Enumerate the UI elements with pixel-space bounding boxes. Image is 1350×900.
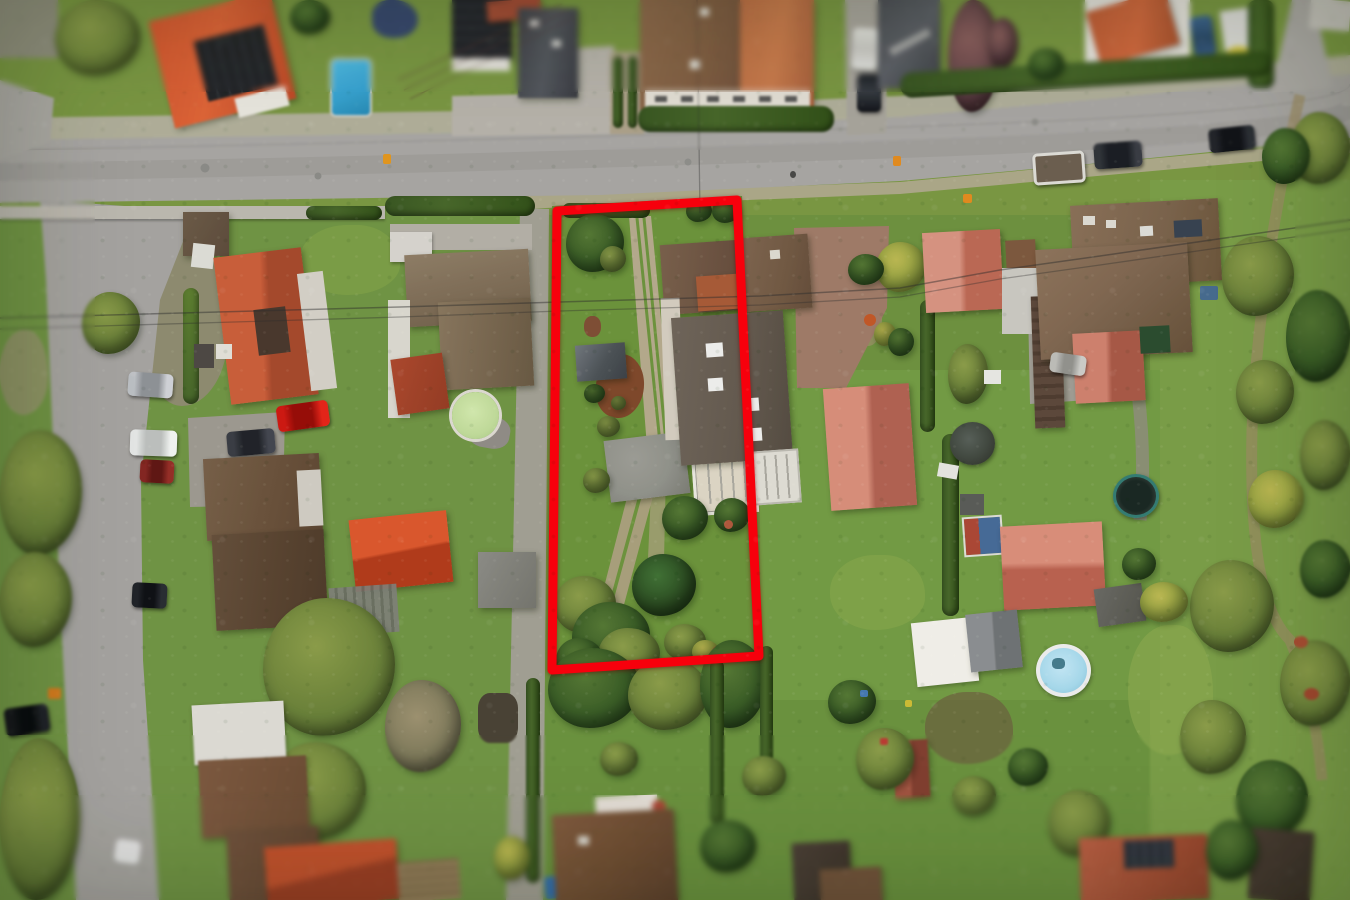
hedge	[638, 106, 834, 132]
hedge-ball	[712, 199, 740, 223]
bush	[888, 328, 914, 356]
house-wall	[452, 58, 510, 71]
playhouse	[962, 515, 1005, 558]
skylight	[530, 20, 539, 27]
garden-toy	[860, 690, 868, 697]
aerial-photo	[0, 0, 1350, 900]
solar-panel-roof	[1124, 839, 1175, 869]
path-grass-stripe	[637, 218, 660, 443]
shed-roof	[965, 609, 1023, 672]
bathtub	[114, 838, 142, 864]
tarp	[372, 0, 418, 38]
bush	[597, 416, 620, 437]
garden-shed	[575, 342, 627, 381]
garage-roof	[604, 431, 691, 502]
car	[139, 459, 174, 484]
car	[226, 428, 276, 457]
flower-bed	[584, 316, 601, 337]
bush	[583, 468, 610, 493]
conservatory-glazing	[755, 454, 798, 501]
trailer	[1032, 150, 1086, 186]
pool-ladder	[1052, 658, 1065, 669]
awning	[1139, 325, 1170, 354]
car	[1208, 125, 1256, 154]
solar-panel-roof	[1174, 219, 1203, 237]
caravan	[191, 243, 215, 269]
hedge	[760, 646, 773, 770]
house-roof	[738, 234, 813, 313]
shed-roof	[1094, 583, 1147, 627]
house-roof	[552, 809, 679, 900]
window-row	[655, 96, 800, 102]
house-roof	[1248, 828, 1315, 900]
chimney	[770, 250, 781, 260]
flower-bush	[724, 520, 733, 529]
hedge	[942, 434, 959, 616]
house-roof	[819, 866, 883, 900]
flower-bush	[1294, 636, 1308, 648]
white-box	[216, 344, 232, 359]
house-wall	[297, 469, 324, 526]
garden-toy	[880, 738, 888, 745]
camper-van	[851, 27, 879, 70]
car	[131, 582, 167, 609]
house-roof	[518, 8, 578, 98]
trampoline	[1113, 474, 1159, 518]
garden-pool	[452, 392, 499, 439]
swimming-pool	[332, 60, 370, 115]
house-roof	[264, 838, 400, 900]
shed-roof	[390, 353, 449, 416]
garden-bed	[0, 330, 48, 415]
traffic-marker	[383, 154, 391, 164]
skylight	[747, 427, 763, 441]
flower-bush	[864, 314, 876, 326]
bush	[632, 554, 696, 616]
garden-bench	[1200, 286, 1218, 300]
round-pool	[1036, 644, 1091, 697]
skylight	[552, 40, 561, 47]
garden-bed	[478, 693, 518, 743]
house-roof	[823, 383, 917, 511]
bush	[600, 246, 626, 272]
garden-bed	[0, 0, 58, 58]
chimney	[690, 60, 700, 69]
hedge	[628, 56, 637, 128]
car	[1093, 140, 1143, 169]
house-roof	[191, 701, 286, 766]
flower-bush	[1304, 688, 1319, 700]
skylight	[706, 342, 724, 357]
pallets	[397, 858, 462, 900]
traffic-marker	[893, 156, 901, 166]
shed-roof	[194, 344, 214, 368]
chimney	[578, 836, 589, 845]
hedge	[306, 206, 382, 220]
garden-bed	[925, 692, 1013, 764]
house-roof	[349, 510, 454, 592]
house-roof	[671, 310, 793, 465]
lawn	[990, 90, 1170, 160]
hedge-ball	[686, 200, 712, 222]
hedge	[385, 196, 535, 216]
house-roof	[696, 274, 742, 312]
hedge	[920, 300, 935, 432]
traffic-marker	[963, 194, 972, 203]
car	[130, 429, 178, 457]
skylight	[253, 306, 290, 356]
garden-table	[984, 370, 1001, 384]
shed-roof	[478, 552, 536, 608]
skylight	[708, 377, 724, 391]
shed-roof	[1309, 0, 1350, 32]
house-roof	[438, 298, 534, 391]
house-roof	[922, 229, 1004, 313]
chimney	[1083, 216, 1095, 225]
skylight	[1140, 226, 1154, 237]
house-roof	[1000, 521, 1106, 610]
traffic-marker	[48, 688, 61, 699]
chimney	[700, 8, 709, 16]
hedge	[710, 660, 724, 824]
pedestrian	[790, 171, 796, 178]
car	[127, 371, 174, 398]
hedge	[613, 56, 623, 128]
shed-roof	[960, 494, 984, 515]
water-tank	[950, 422, 995, 465]
garden-toy	[905, 700, 912, 707]
chimney	[1106, 220, 1116, 228]
lawn	[830, 555, 925, 630]
skylight	[744, 397, 760, 411]
